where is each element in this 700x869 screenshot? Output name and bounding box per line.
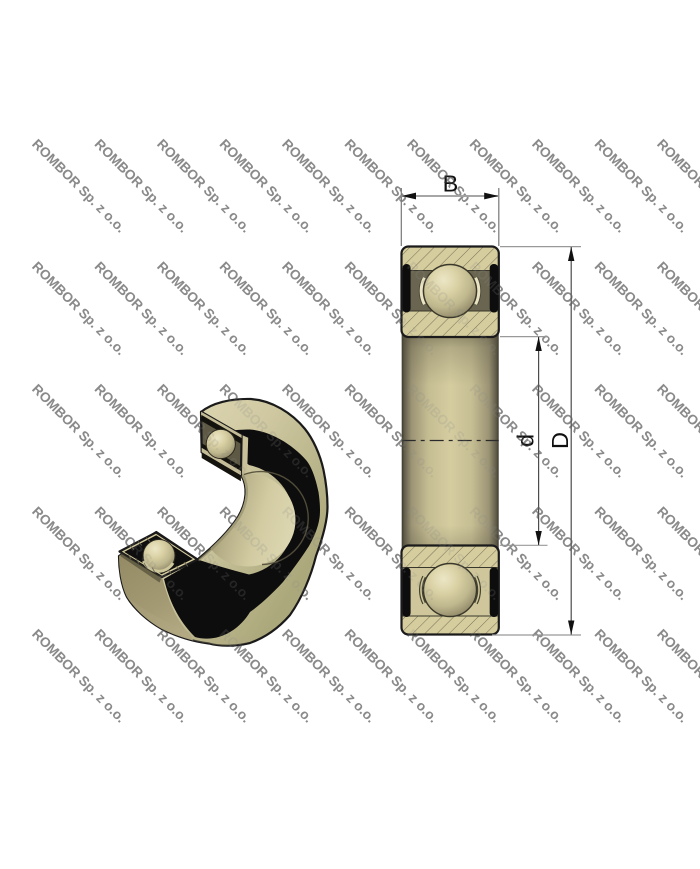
svg-text:D: D bbox=[547, 432, 573, 449]
